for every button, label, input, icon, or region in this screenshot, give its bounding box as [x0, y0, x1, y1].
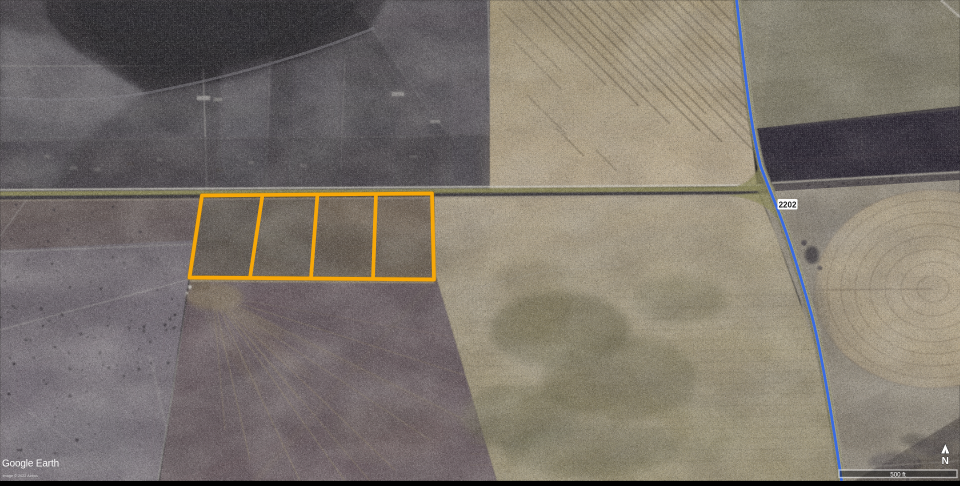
svg-text:500 ft: 500 ft [890, 471, 906, 478]
svg-text:N: N [942, 456, 949, 467]
svg-text:2202: 2202 [779, 200, 797, 209]
svg-text:Google Earth: Google Earth [2, 459, 59, 470]
svg-text:Image © 2022 Airbus: Image © 2022 Airbus [3, 474, 39, 478]
